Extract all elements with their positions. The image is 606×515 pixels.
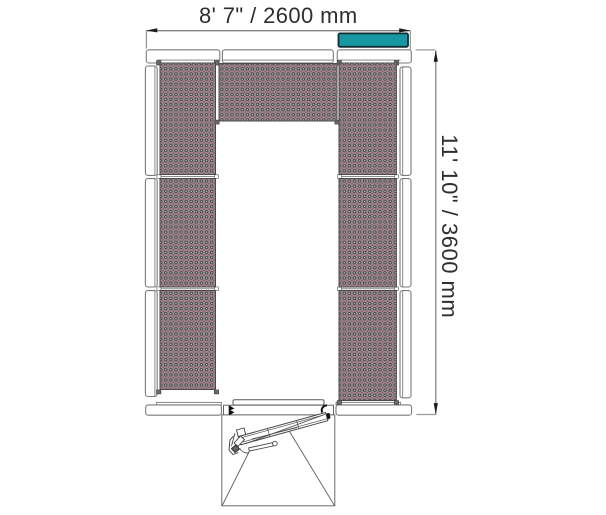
svg-text:8' 7" / 2600 mm: 8' 7" / 2600 mm <box>199 3 358 28</box>
svg-text:11' 10" / 3600 mm: 11' 10" / 3600 mm <box>437 134 462 318</box>
